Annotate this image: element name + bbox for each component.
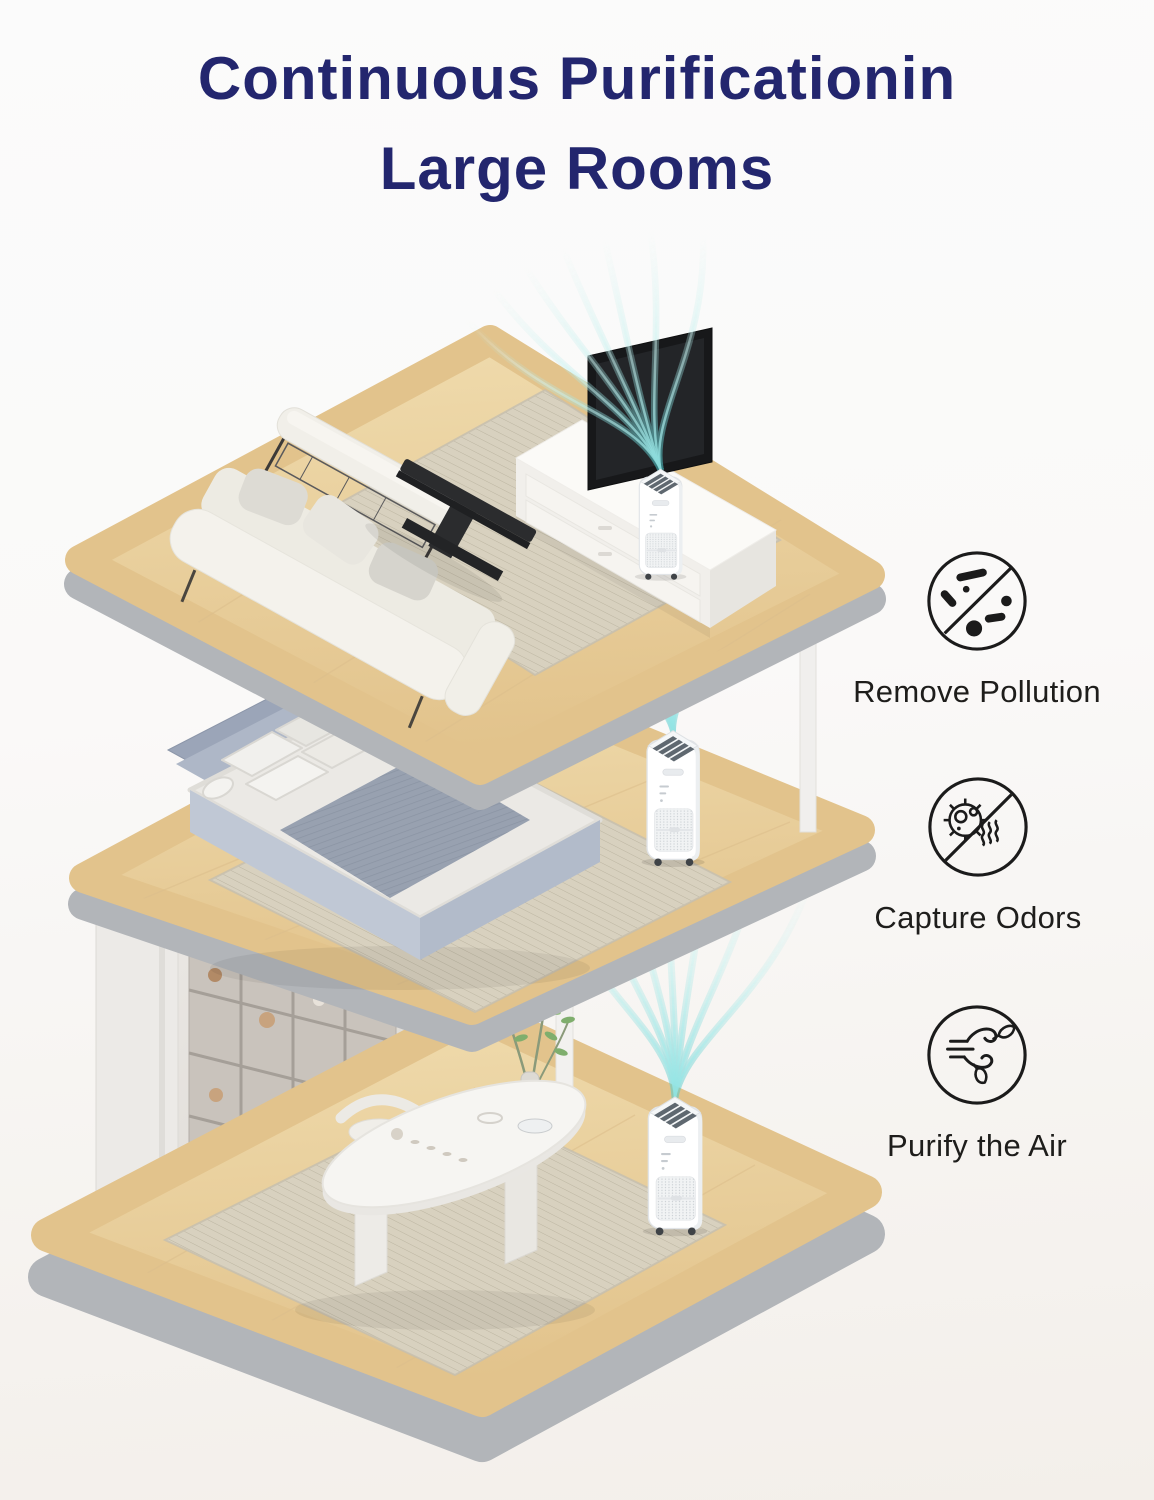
page-background: Continuous Purificationin Large Rooms xyxy=(0,0,1154,1500)
feature-label: Capture Odors xyxy=(874,900,1081,936)
living-room-illustration xyxy=(50,290,890,850)
title-line-1: Continuous Purificationin xyxy=(0,34,1154,124)
feature-label: Purify the Air xyxy=(887,1128,1067,1164)
crossed-odor-germ-icon xyxy=(925,774,1031,880)
page-title: Continuous Purificationin Large Rooms xyxy=(0,34,1154,214)
crossed-pollution-particles-icon xyxy=(924,548,1030,654)
title-line-2: Large Rooms xyxy=(0,124,1154,214)
air-purifier xyxy=(635,469,687,580)
feature-label: Remove Pollution xyxy=(853,674,1101,710)
scene-living-room xyxy=(50,290,890,850)
wind-leaves-icon xyxy=(924,1002,1030,1108)
